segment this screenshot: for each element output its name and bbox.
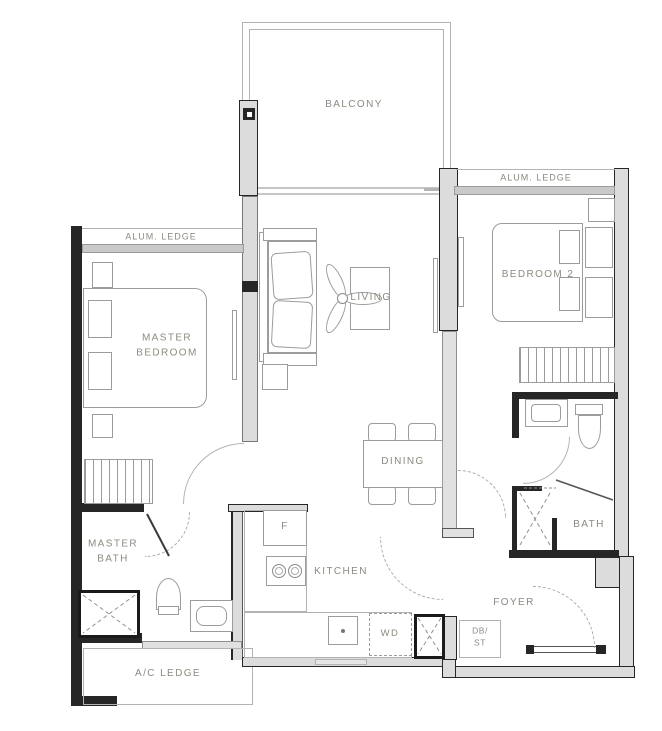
label-db: DB/: [472, 625, 488, 637]
label-st: ST: [472, 637, 488, 649]
label-ac-ledge: A/C LEDGE: [135, 667, 201, 682]
floor-plan: BALCONY ALUM. LEDGE ALUM. LEDGE MASTER B…: [0, 0, 662, 731]
label-db-st: DB/ ST: [472, 625, 488, 650]
label-kitchen: KITCHEN: [314, 565, 368, 580]
label-bedroom-2: BEDROOM 2: [502, 268, 575, 283]
label-alum-ledge-right: ALUM. LEDGE: [500, 171, 572, 184]
label-living: LIVING: [350, 291, 391, 306]
label-fridge: F: [281, 520, 289, 535]
label-alum-ledge-left: ALUM. LEDGE: [125, 230, 197, 243]
label-balcony: BALCONY: [325, 98, 383, 113]
label-bath: BATH: [573, 518, 605, 533]
label-washer-dryer: WD: [381, 627, 400, 641]
label-dining: DINING: [381, 455, 424, 470]
label-master-bath: MASTER BATH: [85, 538, 141, 567]
label-foyer: FOYER: [493, 596, 534, 611]
label-master-bedroom: MASTER BEDROOM: [130, 332, 204, 361]
